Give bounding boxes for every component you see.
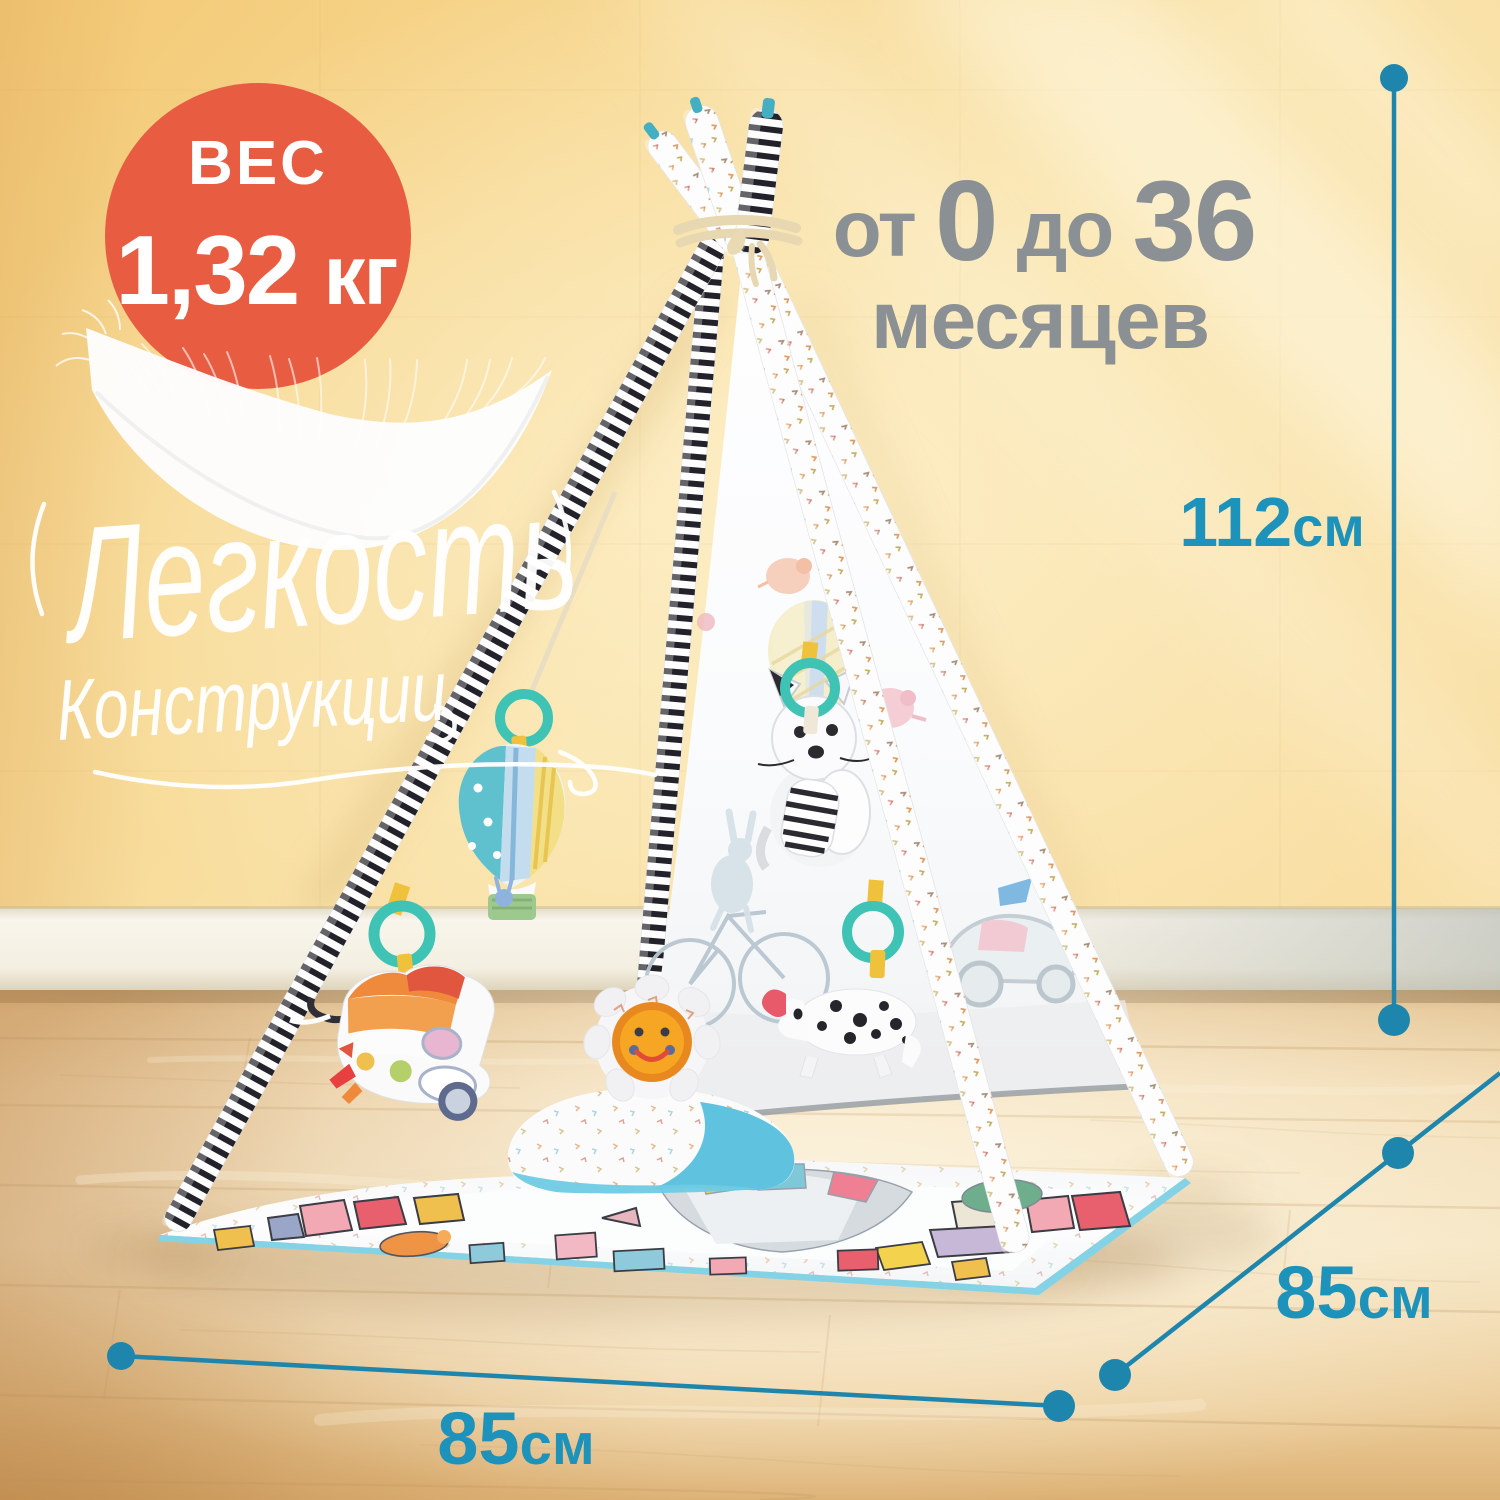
svg-text:месяцев: месяцев bbox=[871, 275, 1209, 366]
svg-text:112см: 112см bbox=[1179, 483, 1365, 561]
svg-text:Легкость: Легкость bbox=[56, 459, 584, 678]
svg-text:ВЕС: ВЕС bbox=[188, 129, 328, 198]
svg-text:1,32 кг: 1,32 кг bbox=[116, 215, 397, 325]
svg-text:Конструкции: Конструкции bbox=[54, 643, 448, 759]
